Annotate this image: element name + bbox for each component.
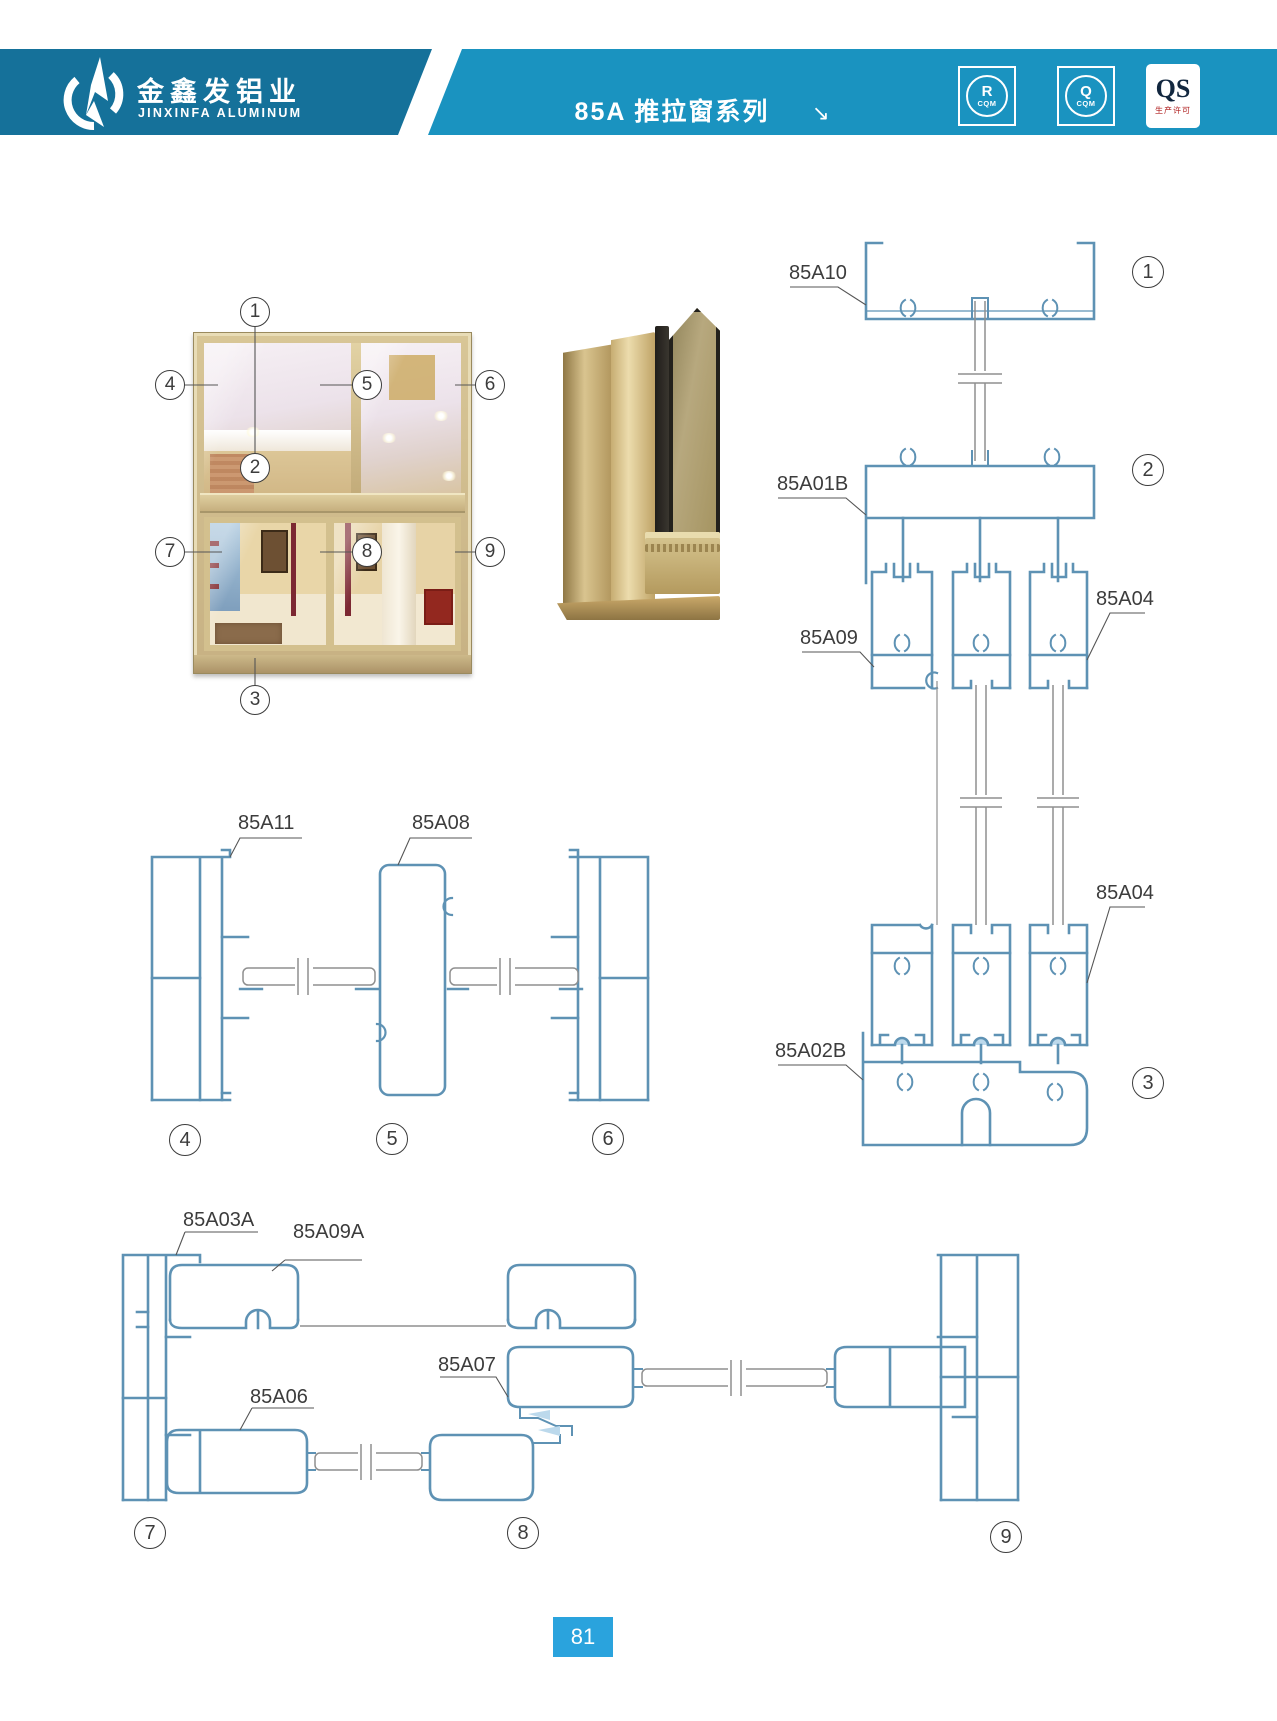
series-title: 85A 推拉窗系列 (552, 92, 792, 128)
photo-callout-2: 2 (240, 453, 270, 483)
cert-badge-cqm-r: R CQM (958, 66, 1016, 126)
photo-callout-3: 3 (240, 685, 270, 715)
cert-badge-cqm-q: Q CQM (1057, 66, 1115, 126)
catalog-page: 金鑫发铝业 JINXINFA ALUMINUM 85A 推拉窗系列 ↘ R CQ… (0, 0, 1277, 1721)
photo-callout-5: 5 (352, 370, 382, 400)
label-85a07: 85A07 (438, 1354, 496, 1377)
label-85a02b: 85A02B (775, 1040, 846, 1063)
label-85a11: 85A11 (238, 812, 294, 835)
badge-letter: Q (1080, 85, 1092, 99)
photo-callout-7: 7 (155, 537, 185, 567)
badge-caption: CQM (978, 99, 997, 108)
section-marker-8: 8 (507, 1517, 539, 1549)
horizontal-section-diagram (130, 810, 670, 1155)
label-85a08: 85A08 (412, 812, 470, 835)
section-marker-7: 7 (134, 1517, 166, 1549)
photo-callout-1: 1 (240, 297, 270, 327)
company-name-en: JINXINFA ALUMINUM (138, 106, 302, 120)
photo-callout-lines (150, 290, 520, 720)
profile-3d-render (505, 300, 720, 622)
photo-callout-8: 8 (352, 537, 382, 567)
badge-caption: CQM (1077, 99, 1096, 108)
label-85a01b: 85A01B (777, 473, 848, 496)
label-85a04-lower: 85A04 (1096, 882, 1154, 905)
label-85a06: 85A06 (250, 1386, 308, 1409)
badge-letter: R (982, 85, 993, 99)
company-name-cn: 金鑫发铝业 (137, 70, 302, 109)
photo-callout-4: 4 (155, 370, 185, 400)
diagonal-arrow-icon: ↘ (812, 101, 830, 126)
section-marker-2: 2 (1132, 454, 1164, 486)
label-85a09: 85A09 (800, 627, 858, 650)
label-85a09a: 85A09A (293, 1221, 364, 1244)
label-85a04-upper: 85A04 (1096, 588, 1154, 611)
badge-letter: QS (1156, 76, 1191, 102)
section-marker-9: 9 (990, 1521, 1022, 1553)
label-85a03a: 85A03A (183, 1209, 254, 1232)
page-number: 81 (553, 1617, 613, 1657)
section-marker-1: 1 (1132, 256, 1164, 288)
section-marker-3: 3 (1132, 1067, 1164, 1099)
cert-badge-qs: QS 生产许可 (1146, 64, 1200, 128)
label-85a10: 85A10 (789, 262, 847, 285)
photo-callout-6: 6 (475, 370, 505, 400)
photo-callout-9: 9 (475, 537, 505, 567)
vertical-section-diagram (690, 225, 1170, 1155)
badge-caption: 生产许可 (1155, 105, 1191, 116)
company-logo-icon (64, 55, 124, 133)
plan-section-diagram (100, 1150, 1050, 1515)
